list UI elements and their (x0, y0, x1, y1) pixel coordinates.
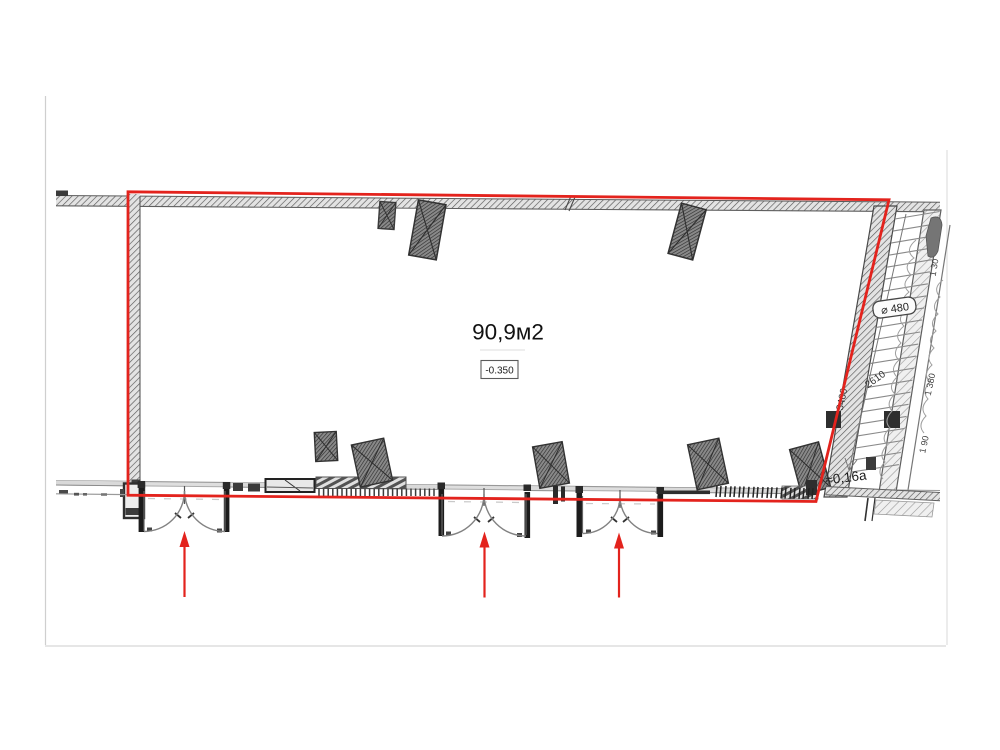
svg-text:-0.350: -0.350 (485, 366, 514, 377)
svg-text:90,9м2: 90,9м2 (472, 320, 544, 345)
